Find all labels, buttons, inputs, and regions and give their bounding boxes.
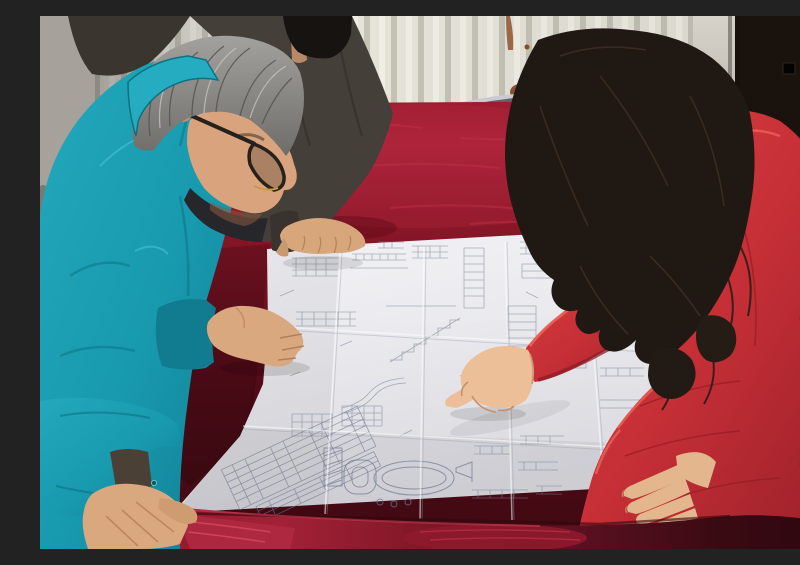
door-fitting [783, 63, 795, 74]
rust-dot [525, 45, 530, 50]
photo-scene: Workers reviewing a technical drawing on… [40, 16, 800, 549]
hand-shadow-top [283, 256, 363, 270]
photo-svg: Three people lean over a large folded en… [40, 16, 800, 549]
cuff-button-1 [151, 480, 156, 485]
right-cuff [156, 299, 216, 370]
